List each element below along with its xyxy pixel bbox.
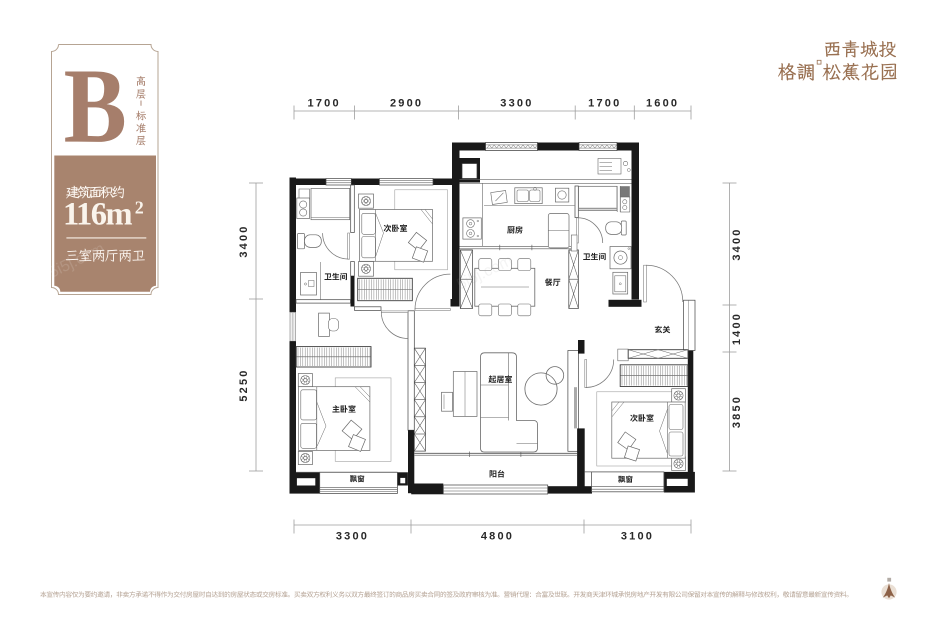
svg-text:116m: 116m [63, 197, 132, 233]
svg-text:3300: 3300 [336, 531, 369, 543]
svg-text:1400: 1400 [731, 312, 743, 345]
svg-text:3400: 3400 [238, 224, 250, 257]
svg-text:5250: 5250 [238, 368, 250, 401]
svg-text:4800: 4800 [481, 531, 514, 543]
svg-text:3850: 3850 [731, 395, 743, 428]
svg-text:1700: 1700 [308, 98, 341, 110]
svg-text:1600: 1600 [646, 98, 679, 110]
svg-text:1700: 1700 [588, 98, 621, 110]
svg-text:2: 2 [135, 198, 144, 218]
svg-text:3400: 3400 [731, 227, 743, 260]
svg-text:3300: 3300 [500, 98, 533, 110]
svg-text:2900: 2900 [390, 98, 423, 110]
svg-text:3100: 3100 [621, 531, 654, 543]
